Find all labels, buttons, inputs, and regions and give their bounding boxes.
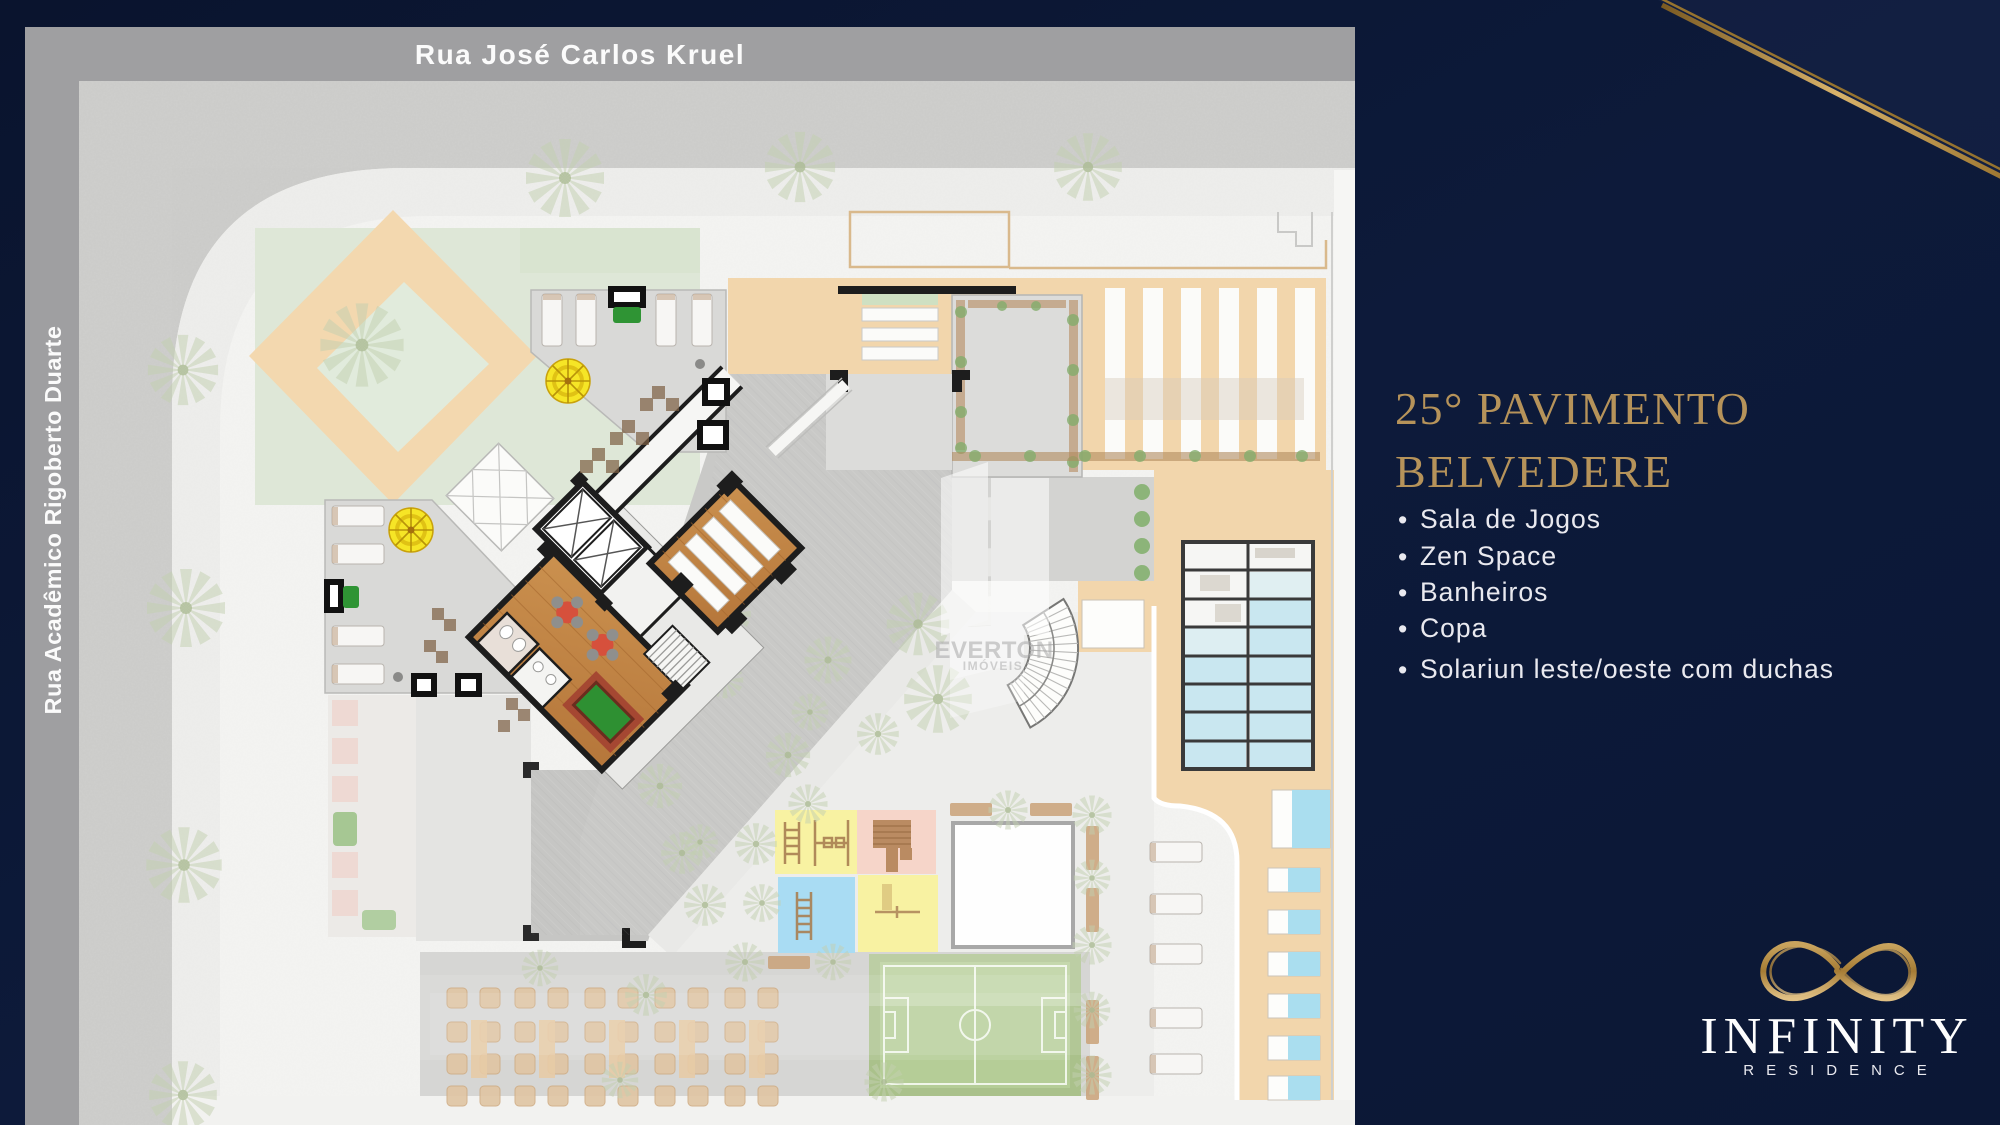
svg-text:Solariun leste/oeste com ducha: Solariun leste/oeste com duchas xyxy=(1420,654,1834,684)
svg-text:Rua Acadêmico Rigoberto Duarte: Rua Acadêmico Rigoberto Duarte xyxy=(40,326,66,715)
svg-text:INFINITY: INFINITY xyxy=(1700,1008,1973,1065)
svg-text:•: • xyxy=(1398,542,1408,572)
svg-text:•: • xyxy=(1398,655,1408,685)
svg-text:Banheiros: Banheiros xyxy=(1420,577,1548,607)
svg-text:IMÓVEIS: IMÓVEIS xyxy=(963,658,1024,673)
svg-text:•: • xyxy=(1398,578,1408,608)
svg-text:•: • xyxy=(1398,505,1408,535)
svg-text:Sala de Jogos: Sala de Jogos xyxy=(1420,504,1601,534)
svg-text:25° PAVIMENTO: 25° PAVIMENTO xyxy=(1395,383,1750,434)
svg-text:Zen Space: Zen Space xyxy=(1420,541,1557,571)
svg-text:Rua José Carlos Kruel: Rua José Carlos Kruel xyxy=(415,39,745,70)
svg-text:Copa: Copa xyxy=(1420,613,1487,643)
svg-text:•: • xyxy=(1398,614,1408,644)
svg-text:BELVEDERE: BELVEDERE xyxy=(1395,446,1673,497)
svg-text:RESIDENCE: RESIDENCE xyxy=(1743,1062,1939,1079)
